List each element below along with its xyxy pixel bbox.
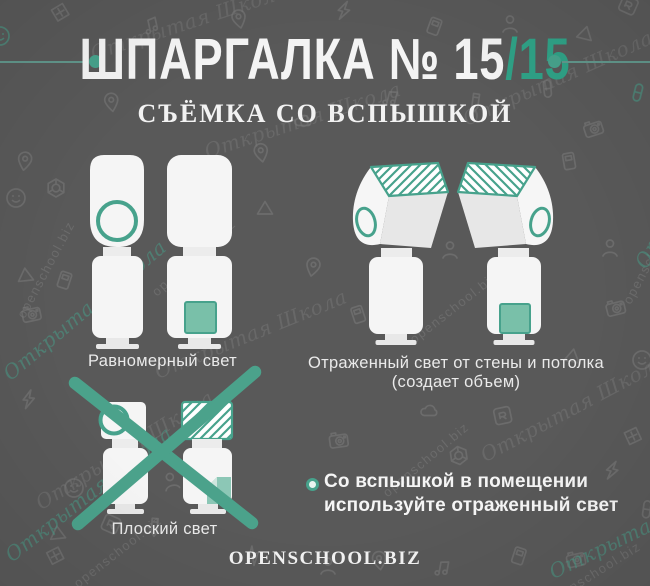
title-rule-right [562,61,650,63]
bullet-dot-icon [306,478,319,491]
caption-even-light: Равномерный свет [55,352,270,371]
tip-line1: Со вспышкой в помещении [324,470,619,494]
title-slash: / [505,27,518,92]
tip-text: Со вспышкой в помещении используйте отра… [324,470,619,518]
tip-line2: используйте отраженный свет [324,494,619,518]
even-light-flash-front-illustration [90,155,144,349]
page-title: ШПАРГАЛКА № 15/15 [72,30,579,90]
caption-bounced-line1: Отраженный свет от стены и потолка [300,354,612,373]
cross-out-x-mark [75,372,255,524]
site-footer: OPENSCHOOL.BIZ [0,548,650,570]
title-total-number: 15 [519,27,571,92]
title-text: ШПАРГАЛКА № 15 [80,27,506,92]
caption-flat-light: Плоский свет [57,520,272,539]
battery-door-panel [185,302,216,333]
caption-bounced-line2: (создает объем) [300,373,612,392]
title-dot-right [548,55,561,68]
even-light-flash-back-illustration [167,155,232,349]
infographic-root: openschool.biz openschool.biz openschool… [0,0,650,586]
page-subtitle: СЪЁМКА СО ВСПЫШКОЙ [0,99,650,129]
caption-bounced-light: Отраженный свет от стены и потолка (созд… [300,354,612,391]
bounced-light-flash-left-illustration [353,163,448,345]
bounced-light-flash-right-illustration [458,163,553,345]
battery-door-panel [500,304,530,333]
